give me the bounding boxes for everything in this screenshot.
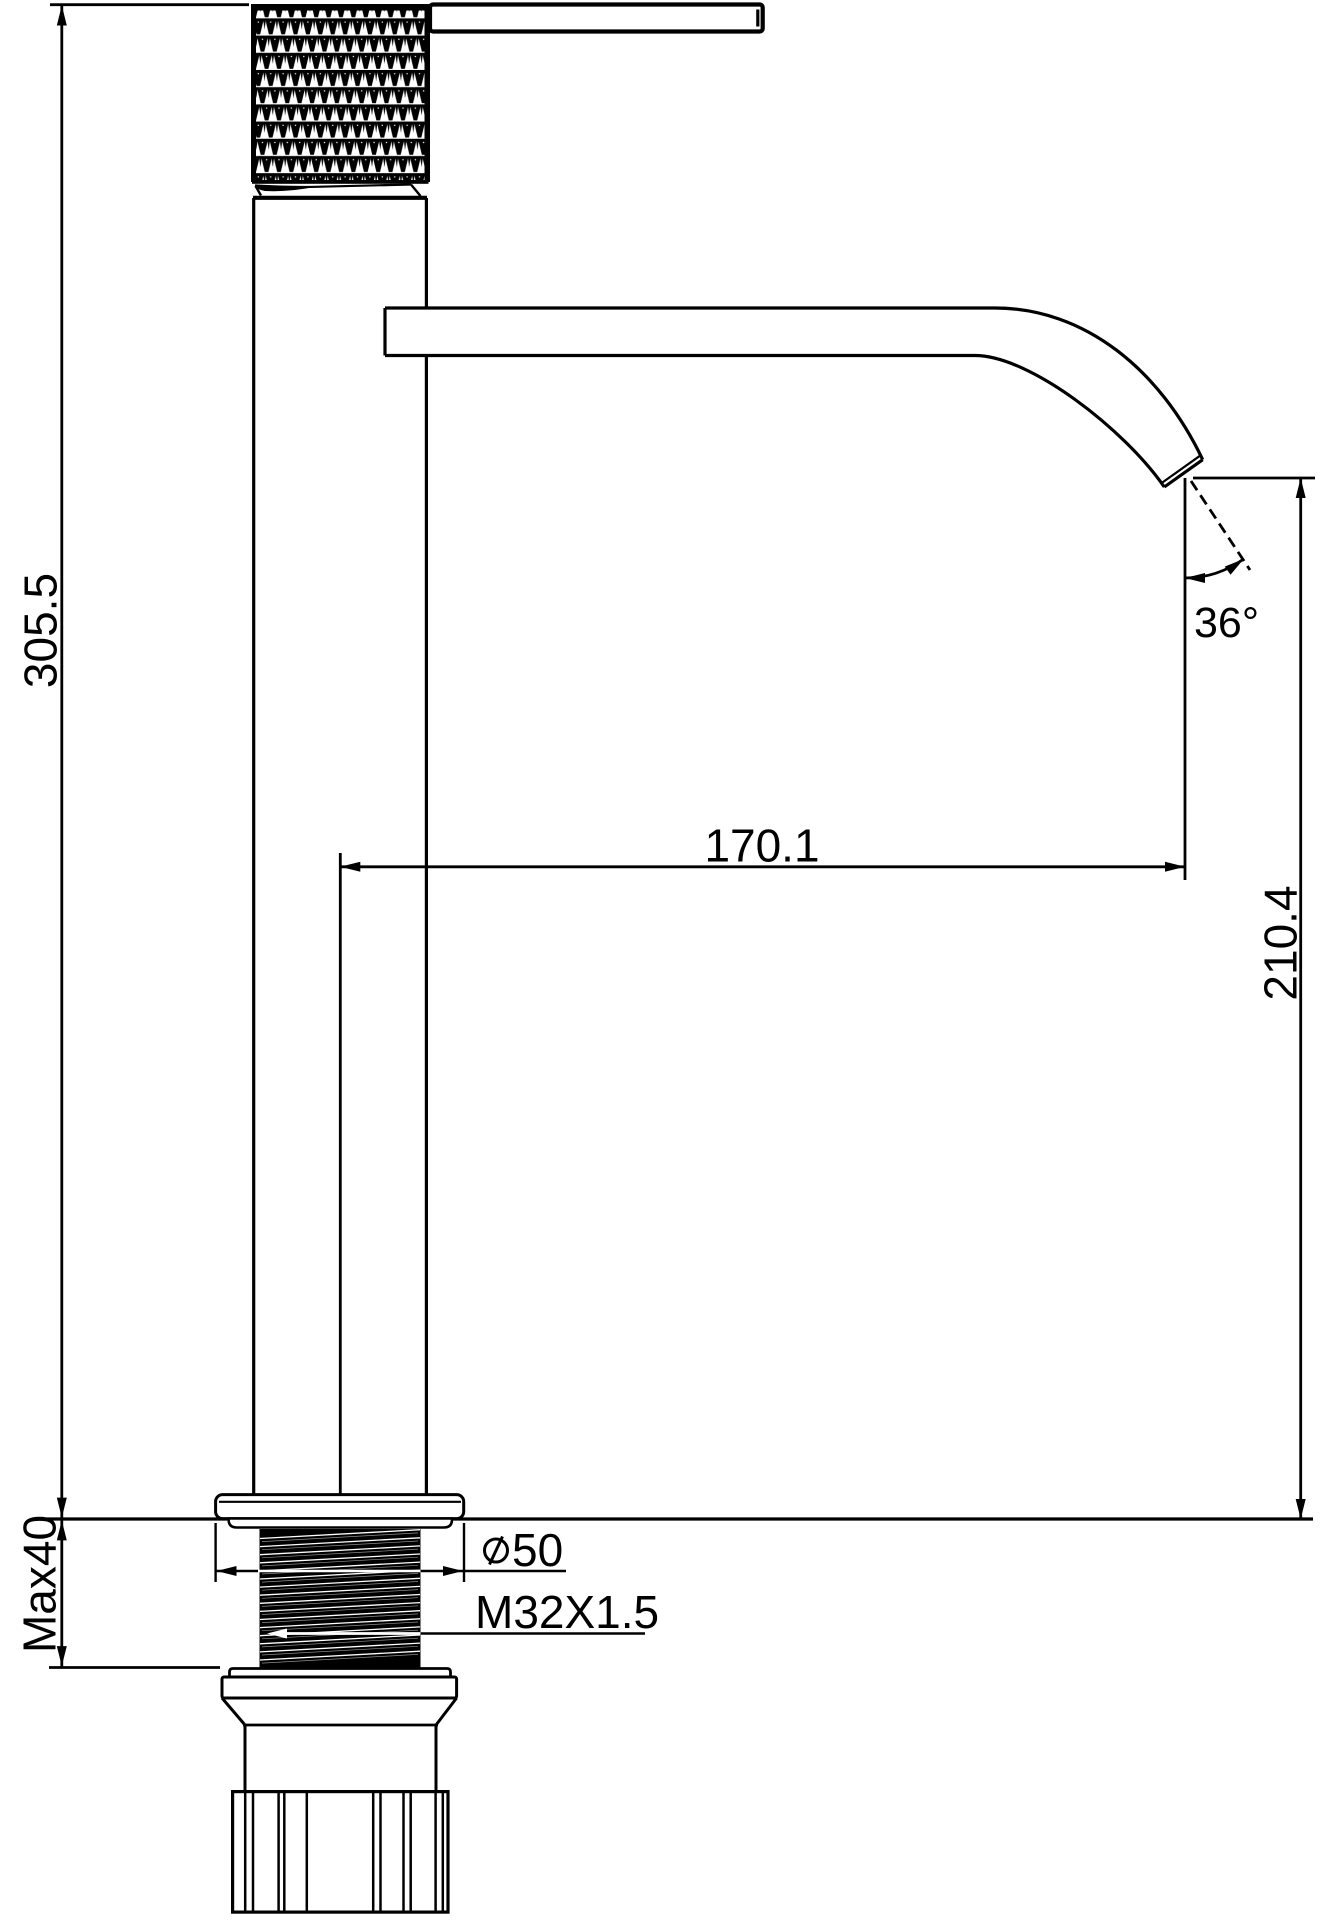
- svg-text:305.5: 305.5: [15, 573, 67, 688]
- svg-text:36°: 36°: [1194, 599, 1259, 647]
- svg-text:M32X1.5: M32X1.5: [475, 1586, 659, 1638]
- svg-text:50: 50: [512, 1524, 563, 1576]
- svg-text:210.4: 210.4: [1255, 885, 1307, 1000]
- svg-text:Max40: Max40: [14, 1515, 66, 1653]
- svg-text:170.1: 170.1: [704, 820, 819, 872]
